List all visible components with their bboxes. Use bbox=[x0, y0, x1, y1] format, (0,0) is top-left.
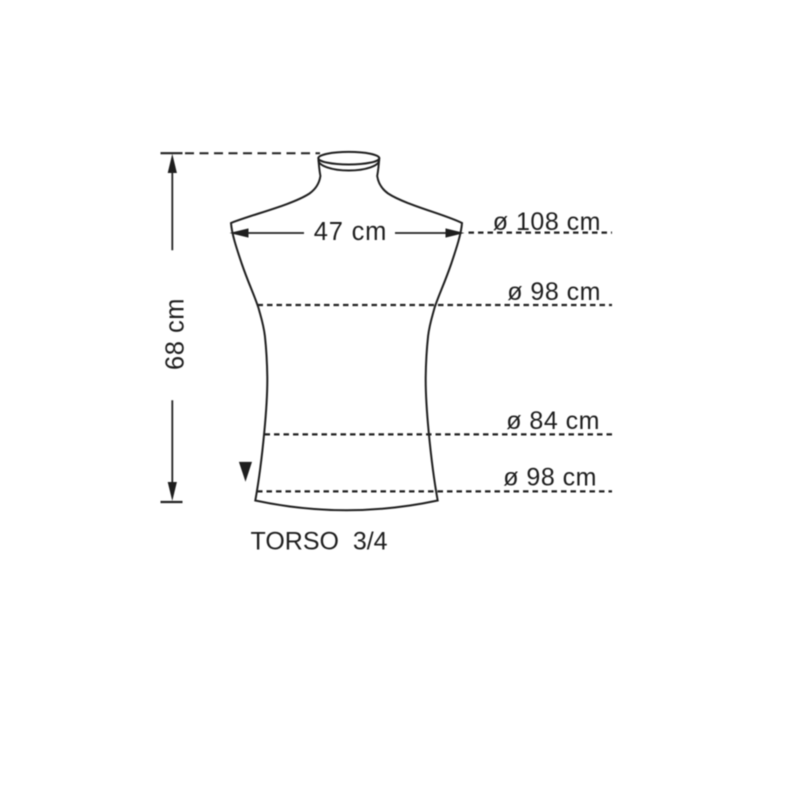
svg-text:47 cm: 47 cm bbox=[314, 218, 387, 246]
svg-text:ø 108 cm: ø 108 cm bbox=[493, 208, 601, 236]
svg-text:ø 98 cm: ø 98 cm bbox=[503, 464, 597, 492]
svg-text:68 cm: 68 cm bbox=[162, 298, 190, 370]
svg-text:ø 98 cm: ø 98 cm bbox=[507, 278, 601, 306]
svg-text:TORSO 3/4: TORSO 3/4 bbox=[251, 528, 388, 556]
svg-text:ø 84 cm: ø 84 cm bbox=[506, 407, 600, 435]
